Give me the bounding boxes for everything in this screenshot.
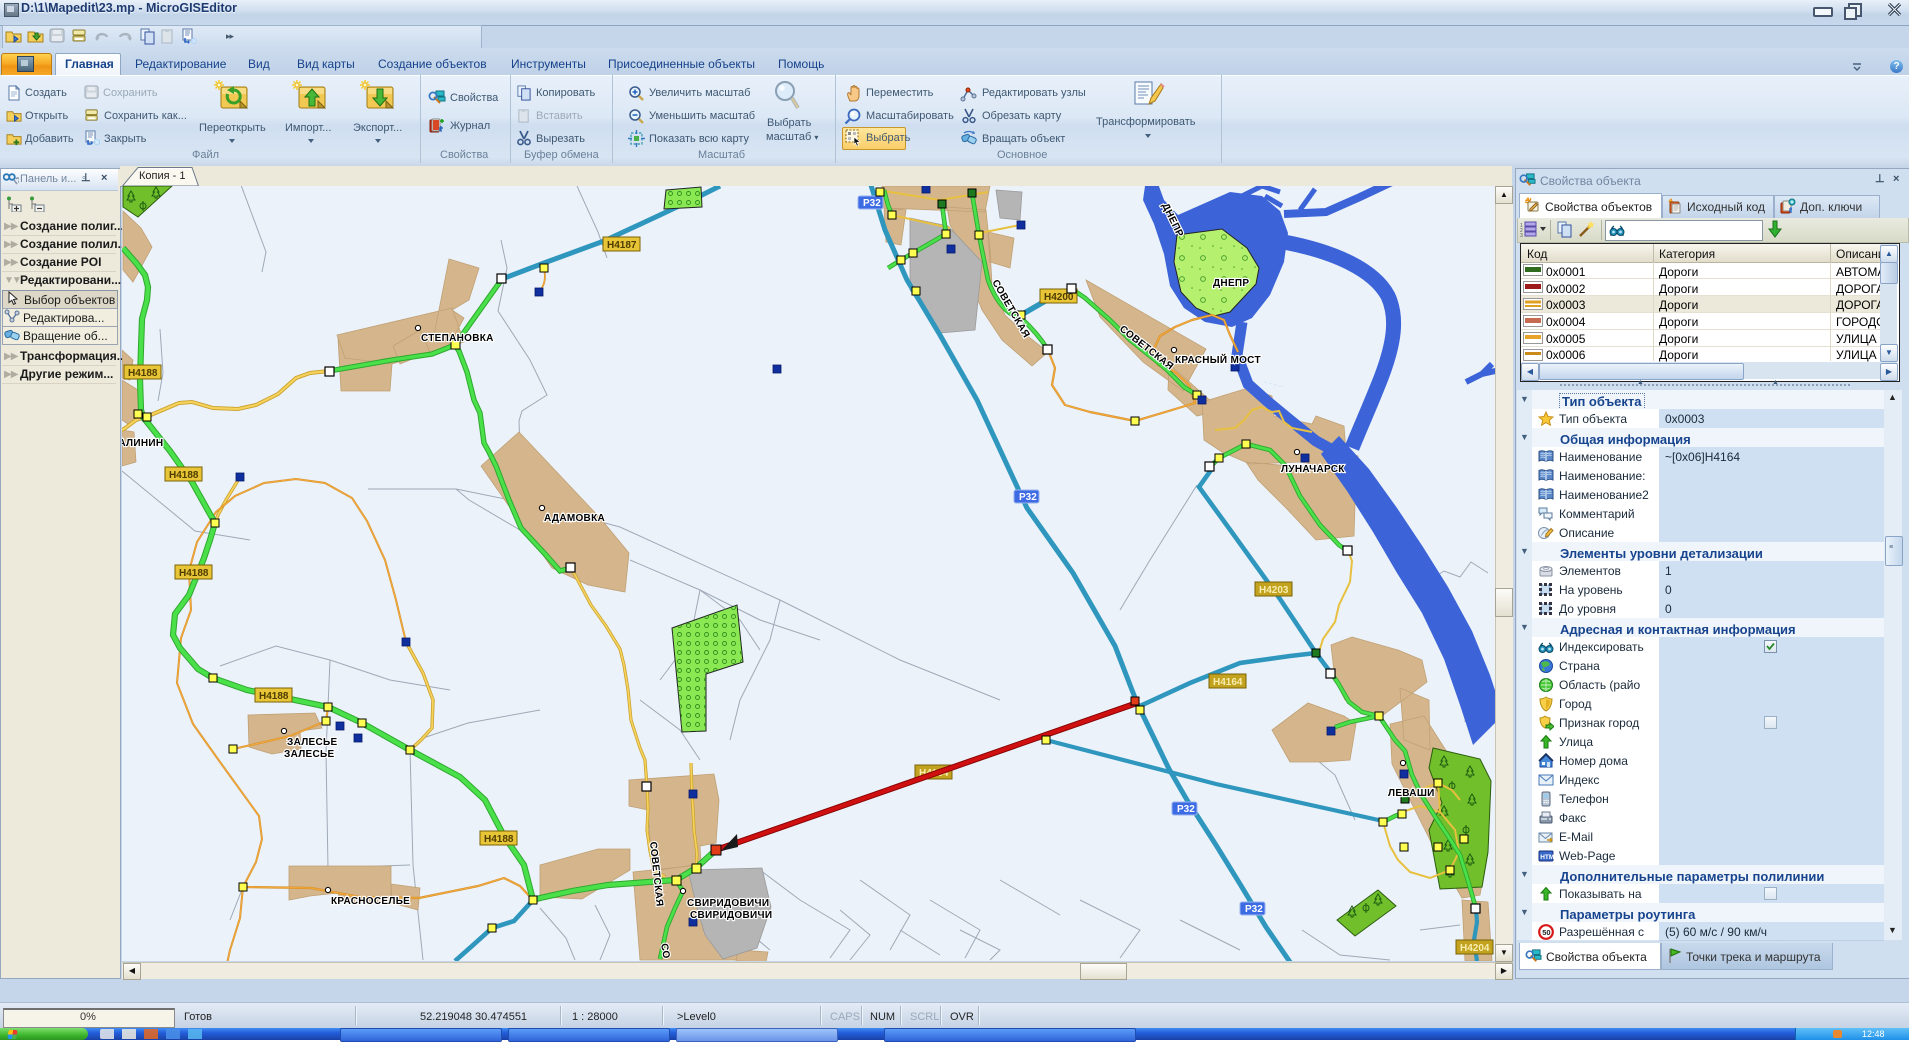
svg-text:ЛУНАЧАРСК: ЛУНАЧАРСК: [1281, 464, 1345, 475]
svg-text:Р32: Р32: [863, 198, 881, 209]
svg-text:Р32: Р32: [1019, 492, 1037, 503]
svg-text:ЗАЛЕСЬЕ: ЗАЛЕСЬЕ: [284, 749, 335, 760]
svg-text:3: 3: [1520, 233, 1523, 238]
svg-text:Н4187: Н4187: [607, 240, 637, 251]
svg-text:СТЕПАНОВКА: СТЕПАНОВКА: [421, 333, 494, 344]
svg-text:Н4188: Н4188: [169, 470, 199, 481]
svg-text:Р32: Р32: [1245, 904, 1263, 915]
svg-text:ЛЕВАШИ: ЛЕВАШИ: [1388, 788, 1435, 799]
svg-text:ЗАЛЕСЬЕ: ЗАЛЕСЬЕ: [287, 737, 338, 748]
svg-text:ДНЕПР: ДНЕПР: [1213, 278, 1249, 289]
svg-text:КРАСНОСЕЛЬЕ: КРАСНОСЕЛЬЕ: [331, 896, 410, 907]
svg-text:КРАСНЫЙ МОСТ: КРАСНЫЙ МОСТ: [1175, 353, 1261, 366]
svg-text:Н4203: Н4203: [1259, 585, 1289, 596]
svg-text:Н4188: Н4188: [484, 834, 514, 845]
svg-text:50: 50: [1542, 928, 1550, 937]
svg-text:Н4200: Н4200: [1044, 292, 1074, 303]
svg-text:СВИРИДОВИЧИ: СВИРИДОВИЧИ: [687, 898, 769, 909]
svg-text:Н4188: Н4188: [128, 368, 158, 379]
svg-text:Н4204: Н4204: [1460, 943, 1490, 954]
svg-text:КАЛИНИН: КАЛИНИН: [122, 438, 163, 449]
svg-text:Н4188: Н4188: [259, 691, 289, 702]
svg-text:СВИРИДОВИЧИ: СВИРИДОВИЧИ: [690, 910, 772, 921]
svg-text:Н4164: Н4164: [1213, 677, 1243, 688]
svg-text:HTM: HTM: [1540, 854, 1554, 861]
svg-text:АДАМОВКА: АДАМОВКА: [544, 513, 605, 524]
svg-text:Р32: Р32: [1177, 804, 1195, 815]
svg-text:Н4188: Н4188: [179, 568, 209, 579]
